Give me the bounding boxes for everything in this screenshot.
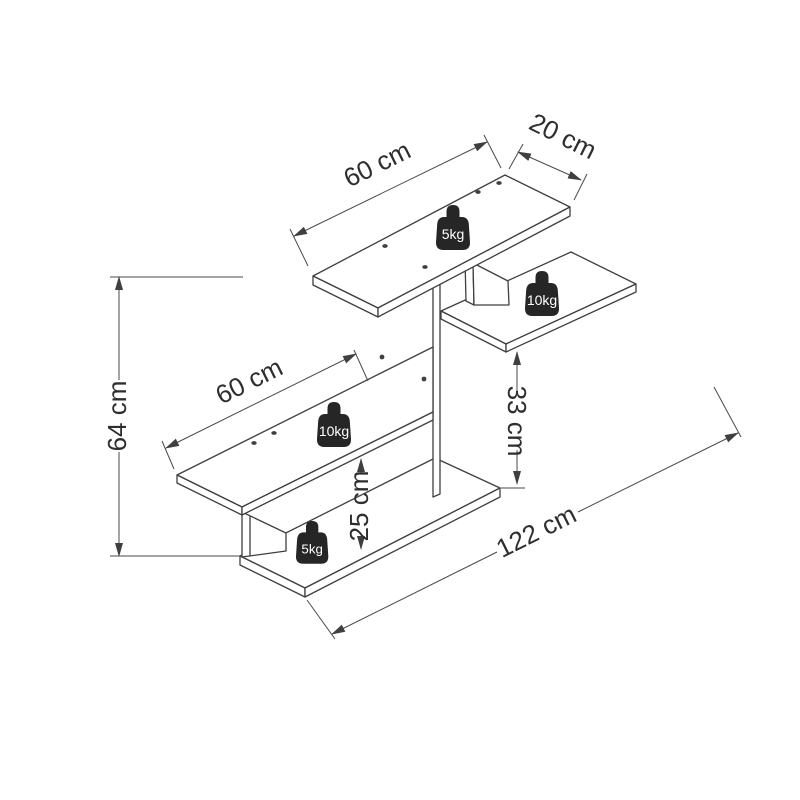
shelf-dimension-diagram: 60 cm 20 cm 64 cm 60 cm 25 cm 33 cm (0, 0, 800, 800)
dimension-line (578, 433, 738, 512)
screw-hole (422, 377, 427, 382)
screw-hole (380, 355, 385, 360)
left-end-panel (242, 512, 286, 557)
center-support-panel-face (433, 275, 440, 497)
dim-right-clearance: 33 cm (501, 352, 532, 488)
screw-hole (251, 441, 256, 445)
dim-label-top-shelf-width: 60 cm (339, 135, 416, 193)
dim-label-total-width: 122 cm (491, 499, 581, 564)
top-connector-panel-face (473, 263, 509, 305)
dim-total-height: 64 cm (102, 277, 243, 556)
extension-line (307, 600, 335, 639)
weight-label-bottom-shelf: 5kg (301, 541, 322, 556)
weight-label-middle-shelf: 10kg (319, 423, 349, 439)
extension-line (714, 387, 741, 437)
weight-label-right-shelf: 10kg (527, 292, 557, 308)
dim-label-bottom-clearance: 25 cm (344, 471, 374, 542)
dim-label-middle-shelf-width: 60 cm (211, 352, 288, 410)
weight-label-top-shelf: 5kg (442, 226, 465, 242)
screw-hole (475, 190, 480, 194)
diagram-canvas: 60 cm 20 cm 64 cm 60 cm 25 cm 33 cm (0, 0, 800, 800)
screw-hole (271, 431, 276, 435)
extension-line (290, 229, 308, 266)
dim-label-right-clearance: 33 cm (502, 386, 532, 457)
screw-hole (382, 244, 387, 248)
extension-line (484, 135, 501, 168)
center-support-panel (433, 275, 440, 497)
extension-line (509, 144, 523, 169)
screw-hole (496, 181, 501, 185)
dim-label-total-height: 64 cm (102, 381, 132, 452)
dim-label-top-shelf-depth: 20 cm (525, 107, 602, 165)
left-end-panel-face (242, 512, 286, 557)
dim-bottom-clearance: 25 cm (344, 459, 374, 549)
extension-line (354, 350, 368, 381)
screw-hole (422, 265, 427, 269)
